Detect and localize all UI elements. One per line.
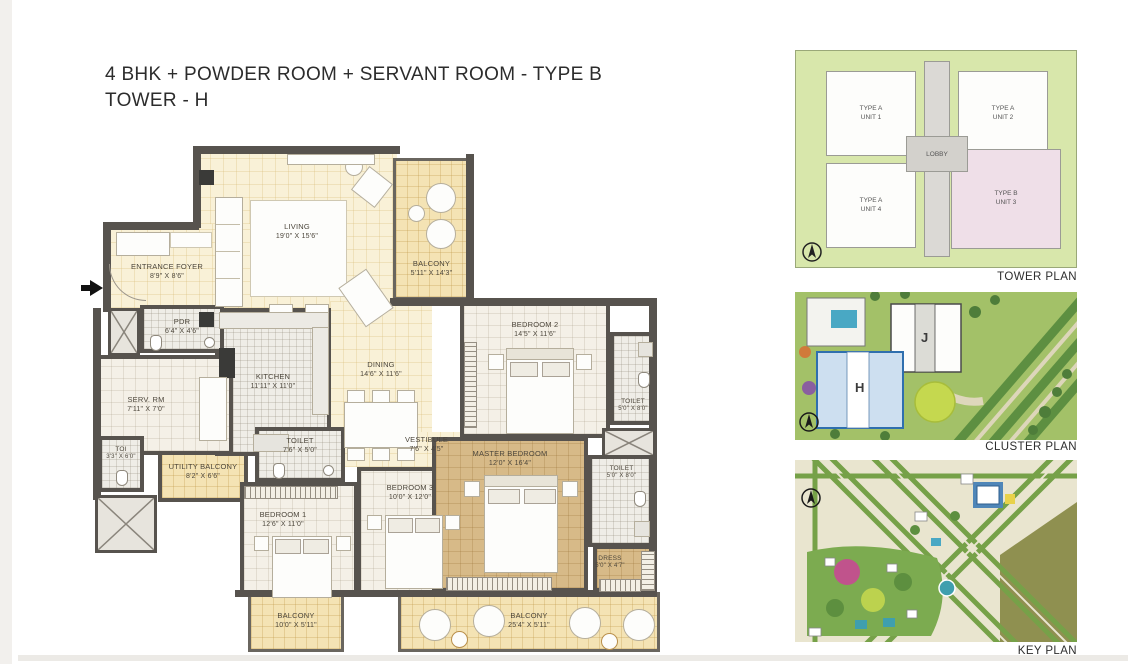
- lift-shaft: [602, 428, 656, 458]
- nightstand: [576, 354, 592, 370]
- room-name: BALCONY: [413, 259, 450, 268]
- lift-x-icon: [111, 311, 137, 353]
- room-bedroom-1: BEDROOM 1 12'6" X 11'0": [240, 482, 358, 597]
- wc-icon: [116, 470, 128, 486]
- room-name: LIVING: [284, 222, 310, 231]
- cluster-plan-caption: CLUSTER PLAN: [795, 441, 1077, 453]
- room-dims: 10'0" X 12'0": [361, 493, 459, 502]
- speaker: [199, 170, 214, 185]
- headboard: [484, 475, 558, 487]
- nightstand: [367, 515, 382, 530]
- room-name: KITCHEN: [256, 372, 290, 381]
- room-dress: DRESS 5'0" X 4'7": [593, 545, 655, 592]
- room-name: PDR: [174, 317, 190, 326]
- lift-x-icon: [605, 431, 653, 455]
- room-name: DINING: [367, 360, 394, 369]
- room-toilet-bed2: TOILET 5'0" X 8'0": [610, 332, 656, 425]
- balcony-chair: [426, 183, 456, 213]
- north-arrow-icon: [799, 408, 819, 434]
- wc-icon: [273, 463, 285, 479]
- room-dims: 8'2" X 6'6": [162, 472, 244, 481]
- room-name: BEDROOM 2: [512, 320, 559, 329]
- room-dims: 3'3" X 6'0": [102, 454, 140, 462]
- dining-chair: [347, 390, 365, 403]
- lobby-label: LOBBY: [926, 151, 948, 158]
- page-title: 4 BHK + POWDER ROOM + SERVANT ROOM - TYP…: [105, 62, 602, 113]
- wardrobe-hatch: [244, 486, 338, 499]
- cluster-plan: H J: [795, 292, 1077, 440]
- title-line1: 4 BHK + POWDER ROOM + SERVANT ROOM - TYP…: [105, 62, 602, 88]
- unit-type: TYPE B: [994, 190, 1017, 197]
- unit-type: TYPE A: [860, 105, 883, 112]
- nightstand: [336, 536, 351, 551]
- room-dims: 5'0" X 8'0": [592, 473, 651, 481]
- wardrobe-hatch: [464, 342, 477, 428]
- wardrobe-hatch: [599, 579, 641, 592]
- unit-number: UNIT 3: [996, 199, 1016, 206]
- room-name: MASTER BEDROOM: [473, 449, 548, 458]
- floor-plan: LIVING 19'0" X 15'6" ENTRANCE FOYER 8'9"…: [85, 140, 670, 664]
- room-dims: 5'0" X 4'7": [583, 563, 637, 571]
- headboard: [506, 348, 574, 360]
- key-plan-map: [795, 460, 1077, 642]
- room-dims: 25'4" X 5'11": [401, 621, 657, 630]
- key-plan-caption: KEY PLAN: [795, 645, 1077, 657]
- room-dims: 6'4" X 4'6": [144, 327, 220, 336]
- room-bedroom-2: BEDROOM 2 14'5" X 11'6": [460, 302, 610, 438]
- lift-x-icon: [98, 498, 154, 550]
- room-name: TOILET: [621, 398, 645, 405]
- tower-plan: TYPE AUNIT 1 TYPE AUNIT 2 TYPE AUNIT 4 T…: [795, 50, 1077, 268]
- wc-icon: [638, 372, 650, 388]
- room-dims: 7'6" X 5'0": [259, 446, 341, 455]
- wc-icon: [150, 335, 162, 351]
- room-name: VESTIBULE: [405, 435, 448, 444]
- room-name: BALCONY: [510, 611, 547, 620]
- room-toi: TOI 3'3" X 6'0": [98, 436, 144, 492]
- room-balcony-master: BALCONY 25'4" X 5'11": [398, 592, 660, 652]
- room-dims: 19'0" X 15'6": [197, 232, 397, 241]
- room-balcony-living: BALCONY 5'11" X 14'3": [393, 158, 470, 300]
- room-name: BALCONY: [277, 611, 314, 620]
- tower-j-label: J: [921, 330, 928, 345]
- key-plan: [795, 460, 1077, 642]
- unit-type: TYPE A: [860, 197, 883, 204]
- nightstand: [445, 515, 460, 530]
- unit-number: UNIT 2: [993, 114, 1013, 121]
- room-name: UTILITY BALCONY: [169, 462, 238, 471]
- washbasin-icon: [323, 465, 334, 476]
- unit-number: UNIT 1: [861, 114, 881, 121]
- tv-console: [287, 154, 375, 165]
- sofa: [215, 197, 243, 307]
- lift-shaft: [108, 308, 140, 356]
- lift-shaft: [95, 495, 157, 553]
- shower: [638, 342, 653, 357]
- nightstand: [562, 481, 578, 497]
- nightstand: [488, 354, 504, 370]
- shower: [634, 521, 650, 537]
- entrance-arrow-icon: [81, 280, 103, 296]
- nightstand: [254, 536, 269, 551]
- room-toilet-common: TOILET 7'6" X 5'0": [255, 427, 345, 482]
- planter: [451, 631, 468, 648]
- tower-plan-caption: TOWER PLAN: [795, 271, 1077, 283]
- wc-icon: [634, 491, 646, 507]
- north-arrow-icon: [801, 484, 821, 510]
- washbasin-icon: [204, 337, 215, 348]
- title-line2: TOWER - H: [105, 88, 602, 114]
- unit-type: TYPE A: [992, 105, 1015, 112]
- tower-unit-1: TYPE AUNIT 1: [826, 71, 916, 156]
- dining-chair: [372, 390, 390, 403]
- room-dims: 12'0" X 16'4": [436, 459, 584, 468]
- brochure-page: 4 BHK + POWDER ROOM + SERVANT ROOM - TYP…: [0, 0, 1145, 664]
- tower-lobby: LOBBY: [906, 136, 968, 172]
- dining-chair: [347, 448, 365, 461]
- living-rug: [250, 200, 347, 297]
- room-dims: 5'0" X 8'0": [614, 406, 652, 414]
- room-name: TOI: [115, 446, 126, 453]
- page-edge-strip: [0, 0, 12, 664]
- room-dims: 10'0" X 5'11": [251, 621, 341, 630]
- balcony-table: [408, 205, 425, 222]
- room-name: TOILET: [610, 465, 634, 472]
- kitchen-counter: [312, 327, 329, 415]
- room-dims: 8'9" X 8'6": [56, 272, 278, 281]
- room-dims: 11'11" X 11'0": [219, 382, 327, 391]
- wardrobe-hatch: [641, 551, 655, 591]
- balcony-chair: [426, 219, 456, 249]
- room-name: SERV. RM: [127, 395, 164, 404]
- room-name: DRESS: [598, 555, 621, 562]
- room-name: TOILET: [286, 436, 313, 445]
- planter: [601, 633, 618, 650]
- wardrobe-hatch: [446, 577, 552, 591]
- foyer-cabinet: [116, 232, 170, 256]
- room-name: BEDROOM 1: [260, 510, 307, 519]
- nightstand: [464, 481, 480, 497]
- room-toilet-master: TOILET 5'0" X 8'0": [588, 455, 655, 547]
- room-dims: 12'6" X 11'0": [228, 520, 338, 529]
- room-dims: 14'6" X 11'6": [330, 370, 432, 379]
- room-dims: 14'5" X 11'6": [464, 330, 606, 339]
- room-name: ENTRANCE FOYER: [131, 262, 203, 271]
- tower-unit-4: TYPE AUNIT 4: [826, 163, 916, 248]
- tower-unit-2: TYPE AUNIT 2: [958, 71, 1048, 156]
- cluster-plan-map: [795, 292, 1077, 440]
- unit-number: UNIT 4: [861, 206, 881, 213]
- room-balcony-1: BALCONY 10'0" X 5'11": [248, 592, 344, 652]
- room-dims: 7'11" X 7'0": [81, 405, 211, 414]
- room-dims: 5'11" X 14'3": [396, 269, 467, 278]
- dining-chair: [397, 390, 415, 403]
- north-arrow-icon: [802, 239, 822, 263]
- tower-h-label: H: [855, 380, 864, 395]
- room-name: BEDROOM 3: [387, 483, 434, 492]
